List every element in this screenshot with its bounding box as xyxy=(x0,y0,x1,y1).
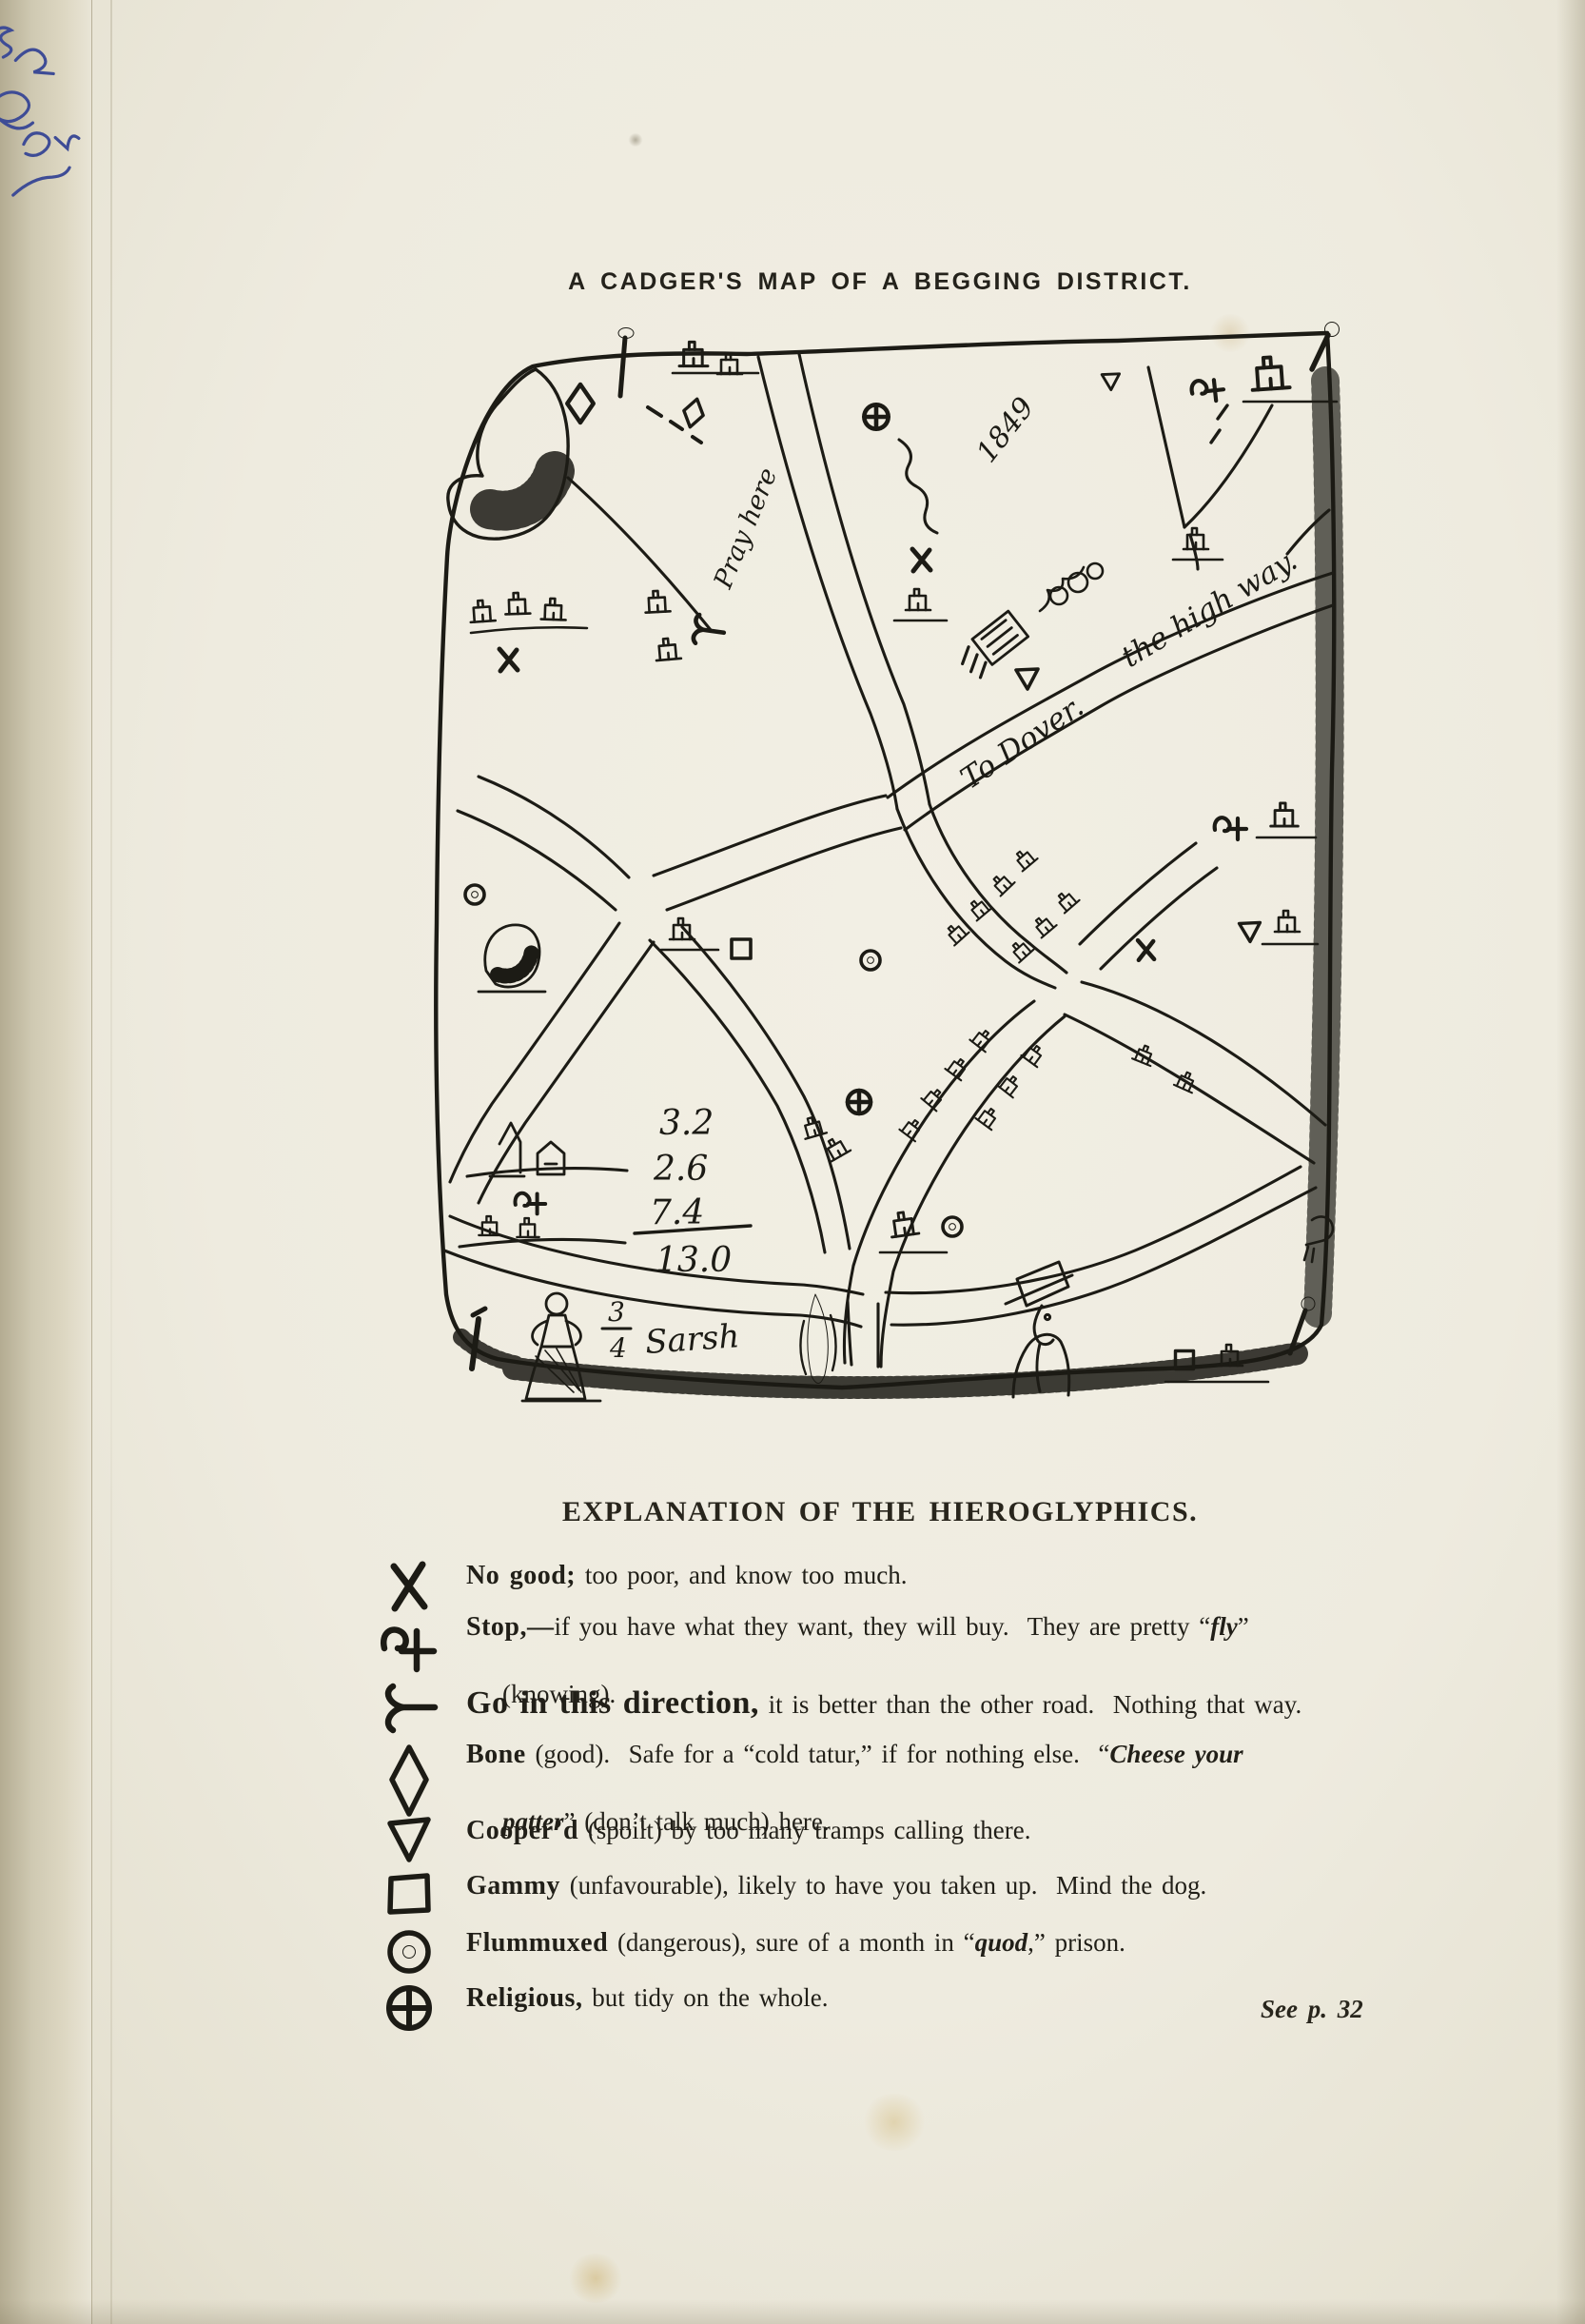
legend-row-go-direction: Go in this direction, it is better than … xyxy=(352,1683,1503,1736)
legend-text: (good). Safe for a “cold tatur,” if for … xyxy=(526,1740,1110,1768)
rock-outcrop xyxy=(448,369,568,539)
map-hieroglyphs xyxy=(465,374,1260,1369)
bottom-edge-shadow xyxy=(0,2299,1585,2324)
legend-term: No good; xyxy=(466,1561,576,1590)
stop-squiggle-cross-icon xyxy=(352,1610,466,1683)
church-smoke xyxy=(1040,563,1103,611)
explanation-heading: EXPLANATION OF THE HIEROGLYPHICS. xyxy=(423,1496,1337,1528)
legend-italic: quod xyxy=(975,1928,1028,1957)
page-title: A CADGER'S MAP OF A BEGGING DISTRICT. xyxy=(423,268,1337,296)
fraction-bottom: 4 xyxy=(609,1332,627,1364)
square-icon xyxy=(352,1869,466,1919)
legend-text: it is better than the other road. Nothin… xyxy=(759,1690,1301,1719)
legend-italic: Cheese your xyxy=(1109,1740,1243,1768)
sum-line-1: 3.2 xyxy=(659,1104,714,1143)
page-edge xyxy=(0,0,92,2324)
legend-text: (unfavourable), likely to have you taken… xyxy=(560,1871,1206,1900)
flame-bush xyxy=(800,1294,835,1384)
handwritten-marginalia-icon xyxy=(0,6,112,225)
fraction-top: 3 xyxy=(608,1296,625,1328)
label-pray-here: Pray here xyxy=(708,463,783,593)
circle-dot-icon xyxy=(352,1926,466,1978)
legend-term: Bone xyxy=(466,1740,526,1769)
legend-italic: fly xyxy=(1210,1612,1237,1641)
legend-row-cooperd: Cooper’d (spoilt) by too many tramps cal… xyxy=(352,1814,1503,1865)
legend-term: Go in this direction, xyxy=(466,1685,759,1721)
legend-text: ,” prison. xyxy=(1027,1928,1125,1957)
legend-text: (spoilt) by too many tramps calling ther… xyxy=(578,1816,1030,1844)
map-buildings xyxy=(469,342,1337,1382)
legend-row-gammy: Gammy (unfavourable), likely to have you… xyxy=(352,1869,1503,1919)
legend-row-no-good: No good; too poor, and know too much. xyxy=(352,1559,1503,1612)
scanned-book-page: { "page": { "title": "A CADGER'S MAP OF … xyxy=(0,0,1585,2324)
roads xyxy=(444,354,1333,1367)
sum-line-2: 2.6 xyxy=(653,1150,708,1189)
legend-term: Religious, xyxy=(466,1983,582,2013)
legend-term: Flummuxed xyxy=(466,1928,608,1958)
label-to-dover: To Dover. xyxy=(954,689,1089,796)
legend-text: too poor, and know too much. xyxy=(576,1561,907,1589)
church-left xyxy=(479,925,545,992)
squiggle-trail xyxy=(899,440,937,533)
sum-line-3: 7.4 xyxy=(650,1193,704,1232)
diamond-icon xyxy=(352,1738,466,1818)
legend-term: Cooper’d xyxy=(466,1816,578,1845)
fork-direction-icon xyxy=(352,1683,466,1736)
x-mark-icon xyxy=(352,1559,466,1612)
map-pin-top-right xyxy=(1312,323,1340,370)
label-year: 1849 xyxy=(970,391,1042,469)
see-page-note: See p. 32 xyxy=(1261,1995,1363,2024)
legend-term: Stop,— xyxy=(466,1612,554,1642)
legend-text: if you have what they want, they will bu… xyxy=(554,1612,1210,1641)
label-sarsh: Sarsh xyxy=(644,1317,741,1362)
legend-text: ” xyxy=(1238,1612,1249,1641)
legend-term: Gammy xyxy=(466,1871,560,1901)
cadgers-map-illustration: 1849 Pray here To Dover. the high way. 3… xyxy=(423,314,1375,1423)
legend-text: (dangerous), sure of a month in “ xyxy=(608,1928,974,1957)
sum-total: 13.0 xyxy=(656,1241,732,1280)
right-edge-shadow xyxy=(1556,0,1585,2324)
legend-text: but tidy on the whole. xyxy=(582,1983,828,2012)
triangle-down-icon xyxy=(352,1814,466,1865)
legend-row-flummuxed: Flummuxed (dangerous), sure of a month i… xyxy=(352,1926,1503,1978)
page-crease xyxy=(110,0,112,2324)
circle-cross-icon xyxy=(352,1981,466,2035)
map-border xyxy=(436,333,1334,1388)
